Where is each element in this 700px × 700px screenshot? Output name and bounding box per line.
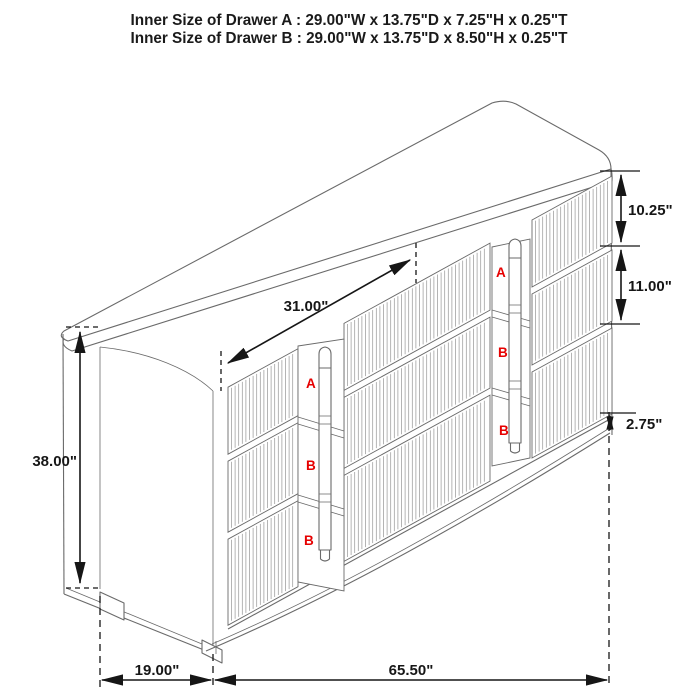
left-drawer-label-b2: B <box>304 533 314 548</box>
cabinet-left-end <box>63 334 222 663</box>
furniture-dimension-diagram: A B B A B B 31.00" 38.00" <box>0 0 700 700</box>
left-drawer-label-a: A <box>306 376 316 391</box>
dim-label-top-width: 31.00" <box>284 298 329 315</box>
dim-label-depth: 19.00" <box>135 662 180 679</box>
right-drawer-label-b2: B <box>499 423 509 438</box>
dim-label-base: 2.75" <box>626 416 662 433</box>
cabinet-drawing: A B B A B B <box>61 101 612 663</box>
diagram-page: A B B A B B 31.00" 38.00" <box>0 0 700 700</box>
right-drawer-label-b1: B <box>498 345 508 360</box>
dim-label-drawer-a: 10.25" <box>628 202 673 219</box>
dim-label-width: 65.50" <box>389 662 434 679</box>
right-drawer-handle <box>509 239 521 453</box>
title-line-2: Inner Size of Drawer B : 29.00"W x 13.75… <box>131 30 569 47</box>
right-drawer-label-a: A <box>496 265 506 280</box>
dim-label-height: 38.00" <box>32 453 77 470</box>
left-drawer-label-b1: B <box>306 458 316 473</box>
left-drawer-handle <box>319 347 331 561</box>
dim-overall-height: 38.00" <box>32 327 98 588</box>
title-line-1: Inner Size of Drawer A : 29.00"W x 13.75… <box>131 12 569 29</box>
title-block: Inner Size of Drawer A : 29.00"W x 13.75… <box>131 12 569 47</box>
front-left-foot <box>202 640 222 663</box>
rear-left-foot <box>100 592 124 620</box>
dim-label-drawer-b: 11.00" <box>628 278 672 295</box>
